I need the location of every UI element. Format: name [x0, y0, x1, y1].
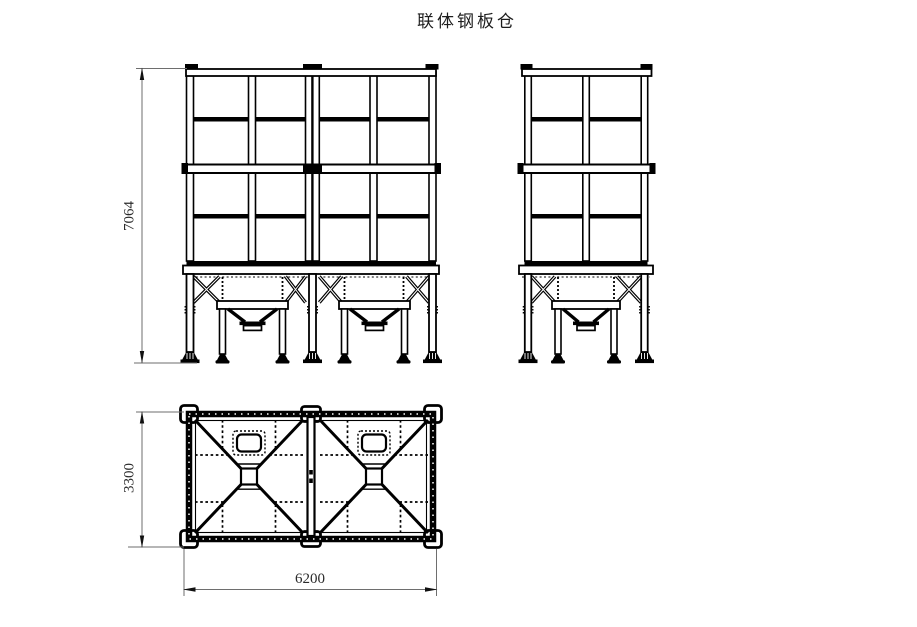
- outer-leg: [641, 274, 648, 352]
- inner-foot: [397, 354, 411, 364]
- plan-cell: [195, 420, 303, 533]
- hopper-leg: [342, 309, 348, 354]
- inner-foot: [338, 354, 352, 364]
- outer-leg: [429, 274, 436, 352]
- drawing-title: 联体钢板仓: [417, 12, 517, 31]
- outer-leg: [309, 274, 316, 352]
- x-brace: [407, 277, 430, 303]
- hopper-leg: [280, 309, 286, 354]
- drawing-sheet: 联体钢板仓: [0, 0, 917, 627]
- inner-foot: [607, 354, 621, 364]
- front-elevation-view: [181, 64, 443, 364]
- x-brace: [319, 277, 341, 303]
- support-structure-side: [519, 274, 655, 364]
- x-brace: [194, 277, 220, 303]
- dimension-plan-width: 6200: [183, 549, 438, 596]
- hopper-outlet: [573, 322, 599, 326]
- hopper-leg: [220, 309, 226, 354]
- deck-beam: [519, 266, 653, 275]
- outer-leg: [525, 274, 532, 352]
- hopper-assembly: [217, 301, 288, 354]
- dimension-label-height: 7064: [122, 201, 138, 232]
- silo-body-side: [518, 64, 656, 277]
- cell-divider: [308, 417, 315, 536]
- outlet-square: [366, 469, 382, 485]
- hopper-assembly: [339, 301, 410, 354]
- manhole: [362, 435, 386, 452]
- hopper-outlet: [240, 322, 266, 326]
- inner-foot: [216, 354, 230, 364]
- inner-foot: [276, 354, 290, 364]
- plan-cell: [320, 420, 428, 533]
- x-brace: [286, 277, 306, 303]
- hopper-leg: [611, 309, 617, 354]
- support-structure-front: [181, 274, 443, 364]
- hopper-leg: [402, 309, 408, 354]
- drawing-canvas: 联体钢板仓: [0, 0, 917, 627]
- outer-foot: [303, 352, 322, 364]
- outer-foot: [423, 352, 442, 364]
- hopper-outlet: [362, 322, 388, 326]
- top-rim: [186, 69, 436, 76]
- hopper-leg: [555, 309, 561, 354]
- hopper-assembly: [552, 301, 620, 354]
- mid-flange: [520, 165, 654, 174]
- manhole: [237, 435, 261, 452]
- outer-foot: [181, 352, 200, 364]
- x-brace: [617, 277, 641, 303]
- outer-foot: [519, 352, 538, 364]
- x-brace: [532, 277, 556, 303]
- inner-foot: [551, 354, 565, 364]
- dimension-label-width: 6200: [295, 571, 325, 587]
- plan-view: [181, 406, 442, 548]
- dimension-plan-depth: 3300: [122, 411, 185, 548]
- dimension-label-depth: 3300: [122, 463, 138, 493]
- top-rim: [522, 69, 652, 76]
- side-elevation-view: [518, 64, 656, 364]
- silo-body-front: [182, 64, 442, 277]
- outer-foot: [635, 352, 654, 364]
- deck-beam: [183, 266, 439, 275]
- outer-leg: [187, 274, 194, 352]
- outlet-square: [241, 469, 257, 485]
